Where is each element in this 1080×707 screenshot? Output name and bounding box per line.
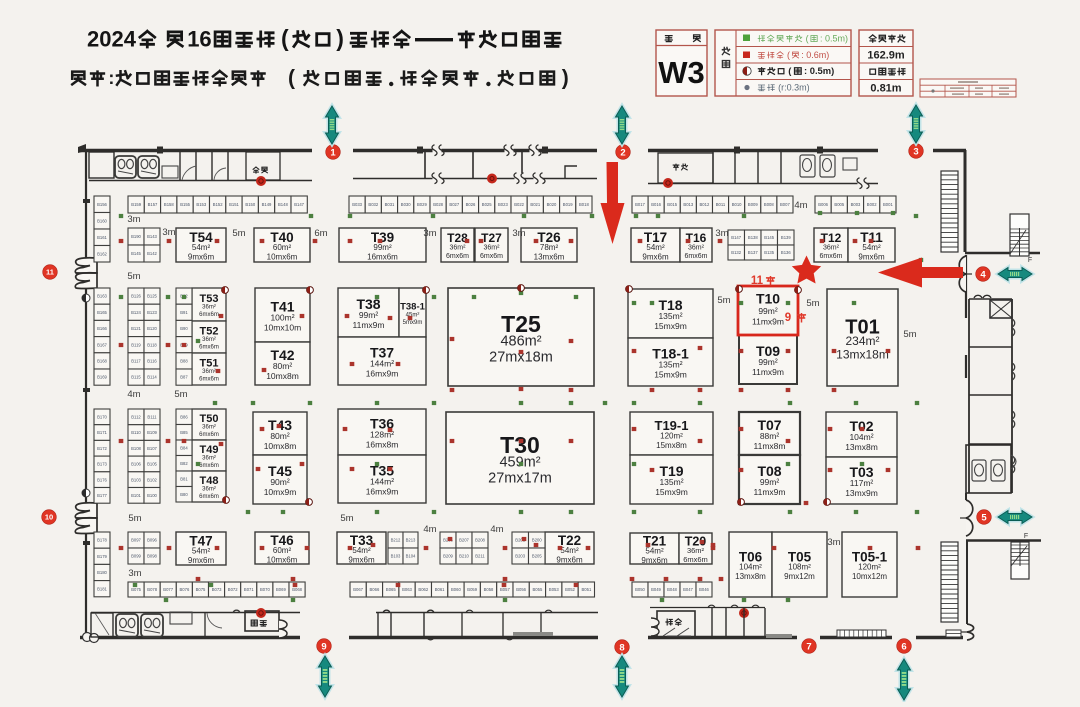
svg-text:99m²: 99m² <box>758 306 778 316</box>
svg-text:B112: B112 <box>131 415 141 420</box>
svg-text:B101: B101 <box>131 493 141 498</box>
svg-text:6mx6m: 6mx6m <box>199 312 219 318</box>
svg-text:B015: B015 <box>667 202 677 207</box>
svg-text:B167: B167 <box>97 342 107 347</box>
svg-text:B050: B050 <box>635 587 645 592</box>
svg-text:B148: B148 <box>278 202 288 207</box>
svg-text:B205: B205 <box>532 554 542 559</box>
svg-text:B003: B003 <box>851 202 861 207</box>
svg-text:B049: B049 <box>651 587 661 592</box>
svg-text:99m²: 99m² <box>373 243 392 252</box>
svg-text:T51: T51 <box>200 358 219 370</box>
svg-text:B152: B152 <box>213 202 223 207</box>
svg-text:B85: B85 <box>180 430 188 435</box>
svg-text:T38-1: T38-1 <box>400 302 426 313</box>
svg-text:B170: B170 <box>97 415 107 420</box>
svg-text:B213: B213 <box>406 538 416 543</box>
svg-text:144m²: 144m² <box>370 476 394 486</box>
svg-text:B91: B91 <box>180 310 188 315</box>
svg-text:B008: B008 <box>764 202 774 207</box>
svg-text:B163: B163 <box>97 294 107 299</box>
svg-text:13mx8m: 13mx8m <box>845 442 878 452</box>
svg-text:36m²: 36m² <box>823 244 840 251</box>
svg-text:B177: B177 <box>97 493 107 498</box>
svg-text:117m²: 117m² <box>850 478 874 488</box>
svg-text:10mx10m: 10mx10m <box>264 322 301 332</box>
svg-text:B010: B010 <box>732 202 742 207</box>
svg-text:B021: B021 <box>530 202 540 207</box>
svg-text:16mx8m: 16mx8m <box>366 439 399 449</box>
svg-text:3m: 3m <box>715 228 728 239</box>
svg-text:2024: 2024 <box>87 27 137 52</box>
svg-text:99m²: 99m² <box>760 477 780 487</box>
svg-text:B055: B055 <box>533 587 543 592</box>
svg-text:3m: 3m <box>127 214 140 225</box>
svg-text:B200: B200 <box>532 538 542 543</box>
svg-text:135m²: 135m² <box>658 359 682 369</box>
svg-text:10mx8m: 10mx8m <box>264 441 297 451</box>
svg-text:6mx6m: 6mx6m <box>199 376 219 382</box>
svg-text:B145: B145 <box>131 251 141 256</box>
svg-text:36m²: 36m² <box>484 244 501 251</box>
svg-text:80m²: 80m² <box>273 361 293 371</box>
svg-text:(: ( <box>787 50 790 60</box>
svg-text:B90: B90 <box>180 326 188 331</box>
svg-text:B126: B126 <box>131 294 141 299</box>
svg-text:B160: B160 <box>97 218 107 223</box>
svg-text:T48: T48 <box>200 475 219 487</box>
svg-text:B162: B162 <box>97 251 107 256</box>
svg-text:6mx6m: 6mx6m <box>683 555 708 564</box>
svg-text:B212: B212 <box>391 538 401 543</box>
svg-text:B006: B006 <box>818 202 828 207</box>
svg-text:B017: B017 <box>635 202 645 207</box>
svg-text:9mx6m: 9mx6m <box>642 253 669 262</box>
svg-text:B016: B016 <box>651 202 661 207</box>
svg-text:104m²: 104m² <box>739 563 762 572</box>
svg-text:B87: B87 <box>180 375 188 380</box>
svg-text:9mx6m: 9mx6m <box>348 556 375 565</box>
svg-text:13mx18m: 13mx18m <box>836 347 889 361</box>
svg-text:B022: B022 <box>514 202 524 207</box>
svg-text:11mx9m: 11mx9m <box>752 317 784 327</box>
svg-text:6mx6m: 6mx6m <box>199 494 219 500</box>
svg-text:11mx9m: 11mx9m <box>752 367 784 377</box>
svg-text:B106: B106 <box>131 462 141 467</box>
svg-text:5m: 5m <box>128 513 141 524</box>
svg-text:100m²: 100m² <box>270 312 294 322</box>
svg-text:B173: B173 <box>97 462 107 467</box>
svg-text:B181: B181 <box>97 586 107 591</box>
svg-text:B169: B169 <box>97 375 107 380</box>
svg-text:80m²: 80m² <box>270 431 290 441</box>
svg-text:B029: B029 <box>417 202 427 207</box>
svg-text:B103: B103 <box>391 554 401 559</box>
svg-text:B84: B84 <box>180 445 188 450</box>
svg-text:4m: 4m <box>490 524 503 535</box>
svg-text:15mx9m: 15mx9m <box>655 487 688 497</box>
svg-text:B012: B012 <box>700 202 710 207</box>
svg-text:16: 16 <box>187 27 211 52</box>
svg-text:B81: B81 <box>180 476 188 481</box>
svg-text:10mx6m: 10mx6m <box>267 556 298 565</box>
svg-text:6mx6m: 6mx6m <box>199 463 219 469</box>
svg-text:B102: B102 <box>147 477 157 482</box>
svg-text:T50: T50 <box>200 413 219 425</box>
svg-text:11mx9m: 11mx9m <box>754 487 786 497</box>
svg-text:T52: T52 <box>200 326 219 338</box>
svg-text:B013: B013 <box>683 202 693 207</box>
svg-text:B020: B020 <box>547 202 557 207</box>
svg-text:B136: B136 <box>781 250 791 255</box>
svg-text:B138: B138 <box>748 235 758 240</box>
svg-text:B156: B156 <box>97 202 107 207</box>
svg-text:60m²: 60m² <box>273 243 292 252</box>
svg-text:B047: B047 <box>683 587 693 592</box>
svg-text:B153: B153 <box>196 202 206 207</box>
svg-text:B019: B019 <box>563 202 573 207</box>
svg-text:B099: B099 <box>131 554 141 559</box>
svg-text:B109: B109 <box>147 430 157 435</box>
svg-text:5m: 5m <box>903 329 916 340</box>
svg-text:B098: B098 <box>147 554 157 559</box>
svg-text:36m²: 36m² <box>450 244 467 251</box>
svg-text:B065: B065 <box>386 587 396 592</box>
svg-text:B151: B151 <box>229 202 239 207</box>
svg-text:13mx9m: 13mx9m <box>845 488 878 498</box>
svg-text:B121: B121 <box>131 326 141 331</box>
svg-text:B157: B157 <box>148 202 158 207</box>
svg-text:16mx9m: 16mx9m <box>366 486 399 496</box>
svg-text:B072: B072 <box>228 587 238 592</box>
svg-text:36m²: 36m² <box>202 369 216 375</box>
svg-text:B031: B031 <box>385 202 395 207</box>
svg-text:15mx8m: 15mx8m <box>656 441 687 450</box>
svg-text:B120: B120 <box>147 326 157 331</box>
svg-text:54m²: 54m² <box>862 243 881 252</box>
svg-text:B176: B176 <box>97 477 107 482</box>
svg-text:B150: B150 <box>245 202 255 207</box>
svg-text:B073: B073 <box>212 587 222 592</box>
svg-text:B210: B210 <box>459 554 469 559</box>
svg-text:9mx6m: 9mx6m <box>858 253 885 262</box>
svg-text:B097: B097 <box>131 538 141 543</box>
svg-text:B078: B078 <box>147 587 157 592</box>
svg-text:4m: 4m <box>127 389 140 400</box>
svg-text:B053: B053 <box>549 587 559 592</box>
svg-text:3m: 3m <box>128 568 141 579</box>
svg-text:36m²: 36m² <box>202 424 216 430</box>
svg-text:T27: T27 <box>481 231 502 245</box>
svg-text:B061: B061 <box>435 587 445 592</box>
svg-text:B060: B060 <box>451 587 461 592</box>
svg-text:162.9m: 162.9m <box>867 50 905 62</box>
svg-text:F: F <box>1028 257 1032 264</box>
svg-text:9: 9 <box>321 641 326 652</box>
svg-text:T10: T10 <box>756 291 780 307</box>
svg-text:(r:0.3m): (r:0.3m) <box>778 83 810 93</box>
svg-text:: 0.6m): : 0.6m) <box>801 50 829 60</box>
svg-text:B001: B001 <box>883 202 893 207</box>
svg-text:B023: B023 <box>498 202 508 207</box>
svg-text:B071: B071 <box>244 587 254 592</box>
svg-text:3m: 3m <box>512 228 525 239</box>
svg-text:0.81m: 0.81m <box>870 83 901 95</box>
svg-text:54m²: 54m² <box>192 243 211 252</box>
svg-text:B155: B155 <box>180 202 190 207</box>
svg-text:B171: B171 <box>97 430 107 435</box>
svg-text:B062: B062 <box>418 587 428 592</box>
svg-text:54m²: 54m² <box>560 546 579 555</box>
svg-text:54m²: 54m² <box>645 547 664 556</box>
svg-text:W3: W3 <box>658 55 705 90</box>
svg-text:5m: 5m <box>127 271 140 282</box>
svg-text:9: 9 <box>785 312 791 324</box>
svg-text:16mx6m: 16mx6m <box>367 253 398 262</box>
svg-text:99m²: 99m² <box>359 310 379 320</box>
svg-text:(: ( <box>281 25 289 51</box>
svg-text:B032: B032 <box>368 202 378 207</box>
svg-text:F: F <box>1024 533 1028 540</box>
svg-text:5m: 5m <box>340 513 353 524</box>
svg-text:B114: B114 <box>147 375 157 380</box>
svg-text:78m²: 78m² <box>540 243 559 252</box>
svg-text:11mx9m: 11mx9m <box>353 320 385 330</box>
svg-text:10mx9m: 10mx9m <box>264 487 297 497</box>
svg-text:3m: 3m <box>827 537 840 548</box>
svg-text:B115: B115 <box>131 375 141 380</box>
svg-text:108m²: 108m² <box>788 563 811 572</box>
svg-text:B105: B105 <box>147 462 157 467</box>
svg-text:88m²: 88m² <box>760 431 780 441</box>
svg-text:3: 3 <box>913 146 918 157</box>
svg-text:B149: B149 <box>262 202 272 207</box>
svg-text:B178: B178 <box>97 538 107 543</box>
svg-text:B145: B145 <box>764 235 774 240</box>
svg-text:B135: B135 <box>764 250 774 255</box>
svg-text:6m: 6m <box>314 228 327 239</box>
svg-text:54m²: 54m² <box>352 546 371 555</box>
svg-text:B80: B80 <box>180 492 188 497</box>
svg-text:6mx6m: 6mx6m <box>685 253 708 260</box>
svg-text:B132: B132 <box>731 250 741 255</box>
svg-text:4: 4 <box>980 269 986 280</box>
svg-text:B066: B066 <box>370 587 380 592</box>
svg-text:9mx6m: 9mx6m <box>556 556 583 565</box>
svg-text:B203: B203 <box>515 554 525 559</box>
svg-text:B103: B103 <box>131 477 141 482</box>
svg-text:3m: 3m <box>423 228 436 239</box>
svg-text:B026: B026 <box>466 202 476 207</box>
svg-text:16mx9m: 16mx9m <box>366 368 399 378</box>
svg-text:9mx6m: 9mx6m <box>641 556 668 565</box>
svg-text:6mx6m: 6mx6m <box>199 432 219 438</box>
svg-text:36m²: 36m² <box>687 546 705 555</box>
svg-text:B125: B125 <box>147 294 157 299</box>
svg-text:B096: B096 <box>147 538 157 543</box>
svg-text:B030: B030 <box>401 202 411 207</box>
svg-text:B052: B052 <box>565 587 575 592</box>
svg-text:144m²: 144m² <box>370 358 394 368</box>
svg-text:B166: B166 <box>97 326 107 331</box>
svg-text:36m²: 36m² <box>202 455 216 461</box>
svg-text:10mx6m: 10mx6m <box>267 253 298 262</box>
svg-text:B159: B159 <box>131 202 141 207</box>
svg-text:B100: B100 <box>147 493 157 498</box>
svg-text:B190: B190 <box>131 234 141 239</box>
svg-text:10: 10 <box>45 513 53 522</box>
svg-text:: 0.5m): : 0.5m) <box>820 34 848 44</box>
svg-text:B111: B111 <box>147 415 157 420</box>
svg-text:B116: B116 <box>147 359 157 364</box>
svg-text:6mx6m: 6mx6m <box>480 253 503 260</box>
svg-text:B057: B057 <box>500 587 510 592</box>
svg-text:1: 1 <box>330 147 336 158</box>
svg-text:120m²: 120m² <box>660 432 683 441</box>
svg-text:B86: B86 <box>180 414 188 419</box>
svg-text:54m²: 54m² <box>646 243 665 252</box>
svg-text:120m²: 120m² <box>858 563 881 572</box>
svg-text:B104: B104 <box>406 554 416 559</box>
svg-text:8: 8 <box>619 642 624 653</box>
svg-text:9mx6m: 9mx6m <box>188 556 215 565</box>
svg-text:(: ( <box>288 67 295 90</box>
svg-text:B143: B143 <box>147 234 157 239</box>
svg-text:3m: 3m <box>162 227 175 238</box>
svg-text:B172: B172 <box>97 446 107 451</box>
svg-text:B005: B005 <box>834 202 844 207</box>
svg-text:5m: 5m <box>717 295 730 306</box>
svg-text:B82: B82 <box>180 461 188 466</box>
svg-text:B046: B046 <box>699 587 709 592</box>
svg-text:5m: 5m <box>232 228 245 239</box>
svg-text::: : <box>108 68 114 88</box>
svg-text:99m²: 99m² <box>758 357 778 367</box>
svg-text:6mx6m: 6mx6m <box>820 253 843 260</box>
svg-text:11: 11 <box>46 268 54 277</box>
svg-text:B009: B009 <box>748 202 758 207</box>
svg-text:10mx12m: 10mx12m <box>852 572 887 581</box>
svg-text:B068: B068 <box>292 587 302 592</box>
svg-text:B165: B165 <box>97 310 107 315</box>
svg-text:135m²: 135m² <box>658 311 682 321</box>
svg-text:B168: B168 <box>97 359 107 364</box>
svg-text:5m: 5m <box>806 298 819 309</box>
svg-text:B139: B139 <box>781 235 791 240</box>
svg-text:B018: B018 <box>579 202 589 207</box>
svg-text:B048: B048 <box>667 587 677 592</box>
svg-text:B118: B118 <box>147 342 157 347</box>
svg-text:4m: 4m <box>423 524 436 535</box>
svg-text:7: 7 <box>806 641 811 652</box>
svg-text:B208: B208 <box>475 538 485 543</box>
svg-text:36m²: 36m² <box>202 486 216 492</box>
svg-text:B117: B117 <box>131 359 141 364</box>
svg-text:B002: B002 <box>867 202 877 207</box>
svg-text:): ) <box>562 67 569 90</box>
svg-text:B137: B137 <box>748 250 758 255</box>
svg-text:B180: B180 <box>97 570 107 575</box>
svg-text:234m²: 234m² <box>845 334 879 348</box>
svg-text:13mx6m: 13mx6m <box>534 253 565 262</box>
svg-text:B158: B158 <box>164 202 174 207</box>
svg-text:B056: B056 <box>516 587 526 592</box>
svg-text:B051: B051 <box>582 587 592 592</box>
svg-text:B179: B179 <box>97 554 107 559</box>
svg-text:13mx8m: 13mx8m <box>735 572 766 581</box>
svg-text:B058: B058 <box>484 587 494 592</box>
svg-text:11: 11 <box>751 275 764 287</box>
svg-text:B88: B88 <box>180 359 188 364</box>
svg-text:5mx9m: 5mx9m <box>403 320 423 326</box>
svg-text:135m²: 135m² <box>659 477 683 487</box>
svg-text:6: 6 <box>901 641 906 652</box>
svg-text:B207: B207 <box>459 538 469 543</box>
svg-text:T53: T53 <box>200 293 219 305</box>
svg-text:54m²: 54m² <box>192 547 211 556</box>
svg-text:27mx17m: 27mx17m <box>488 471 552 487</box>
svg-text:B028: B028 <box>433 202 443 207</box>
svg-text:104m²: 104m² <box>849 432 873 442</box>
svg-text:B033: B033 <box>352 202 362 207</box>
svg-text:T49: T49 <box>200 444 219 456</box>
svg-text:15mx9m: 15mx9m <box>654 321 687 331</box>
svg-text:B025: B025 <box>482 202 492 207</box>
svg-text:36m²: 36m² <box>688 244 705 251</box>
svg-text:B076: B076 <box>180 587 190 592</box>
svg-text:(: ( <box>806 34 809 44</box>
svg-text:B063: B063 <box>402 587 412 592</box>
svg-text:B059: B059 <box>467 587 477 592</box>
svg-text:36m²: 36m² <box>202 304 216 310</box>
svg-text:90m²: 90m² <box>270 477 290 487</box>
svg-text:B211: B211 <box>475 554 485 559</box>
svg-text:B011: B011 <box>716 202 726 207</box>
svg-text:B070: B070 <box>260 587 270 592</box>
svg-text:9mx12m: 9mx12m <box>784 572 815 581</box>
svg-text:5: 5 <box>981 512 987 523</box>
svg-text:: 0.5m): : 0.5m) <box>804 65 834 76</box>
svg-text:6mx6m: 6mx6m <box>446 253 469 260</box>
svg-text:4m: 4m <box>794 200 807 211</box>
svg-text:B119: B119 <box>131 342 141 347</box>
svg-text:B110: B110 <box>131 430 141 435</box>
svg-text:B147: B147 <box>294 202 304 207</box>
svg-text:5m: 5m <box>174 389 187 400</box>
svg-text:B007: B007 <box>780 202 790 207</box>
svg-text:B077: B077 <box>163 587 173 592</box>
svg-text:B075: B075 <box>131 587 141 592</box>
svg-text:B075: B075 <box>196 587 206 592</box>
svg-text:486m²: 486m² <box>500 334 541 350</box>
svg-text:15mx9m: 15mx9m <box>654 369 687 379</box>
svg-text:): ) <box>336 25 344 51</box>
svg-text:9mx6m: 9mx6m <box>188 253 215 262</box>
svg-text:B067: B067 <box>353 587 363 592</box>
svg-text:B147: B147 <box>731 235 741 240</box>
svg-text:6mx6m: 6mx6m <box>199 344 219 350</box>
svg-text:B209: B209 <box>443 554 453 559</box>
svg-text:B027: B027 <box>449 202 459 207</box>
svg-text:B107: B107 <box>147 446 157 451</box>
svg-text:B123: B123 <box>147 310 157 315</box>
svg-text:36m²: 36m² <box>202 337 216 343</box>
svg-text:B142: B142 <box>147 251 157 256</box>
svg-text:B069: B069 <box>276 587 286 592</box>
svg-text:B161: B161 <box>97 235 107 240</box>
svg-text:60m²: 60m² <box>273 546 292 555</box>
svg-text:B124: B124 <box>131 310 141 315</box>
